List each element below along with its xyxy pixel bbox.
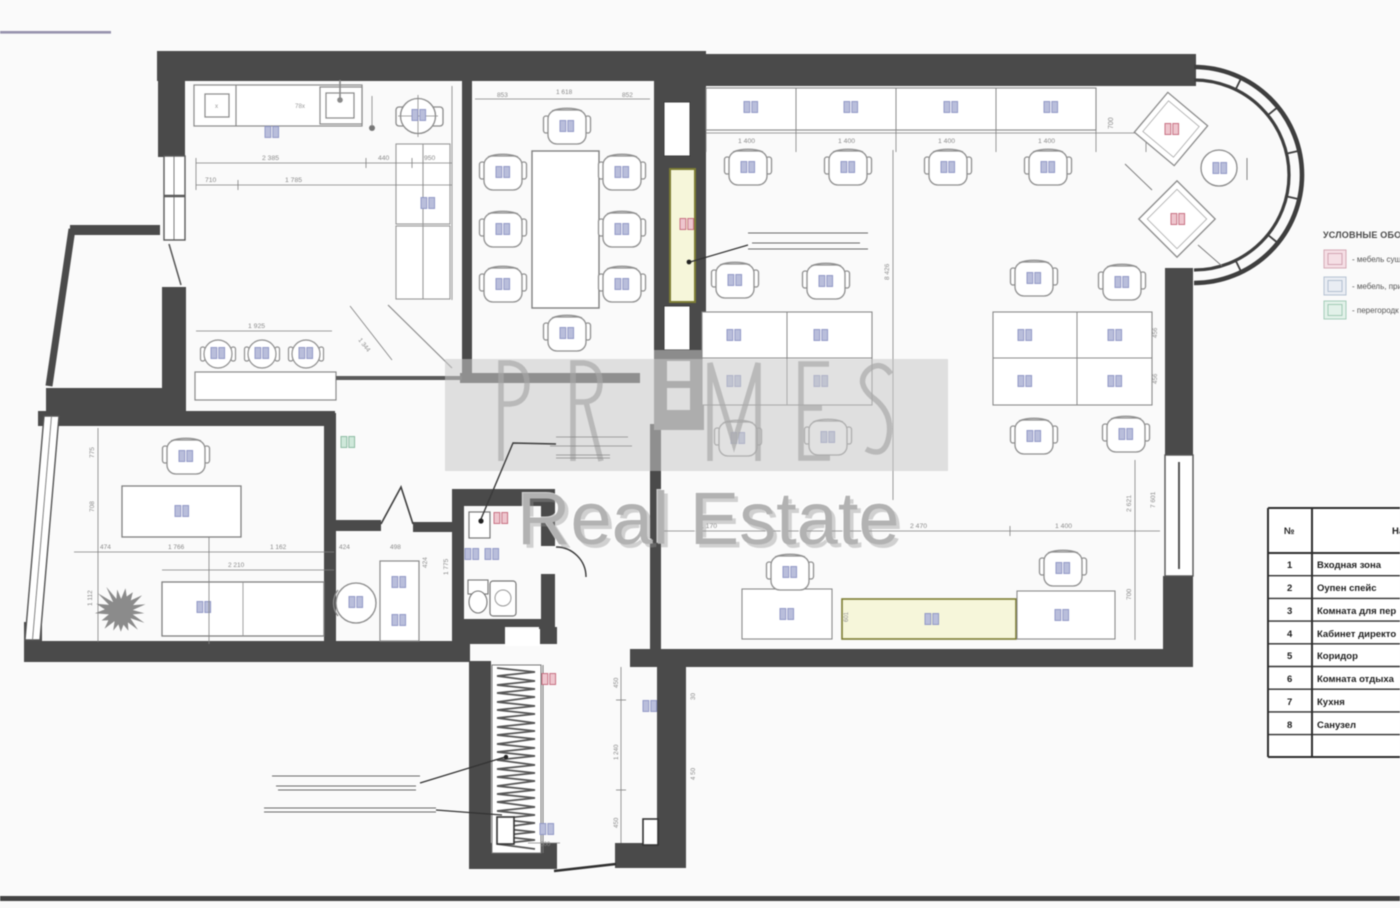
svg-text:Оупен спейс: Оупен спейс	[1317, 583, 1377, 594]
svg-text:Кухня: Кухня	[1317, 697, 1345, 708]
svg-text:710: 710	[205, 177, 217, 184]
svg-text:5: 5	[1287, 651, 1293, 662]
svg-text:1 775: 1 775	[443, 558, 450, 575]
svg-text:853: 853	[497, 92, 508, 99]
svg-text:Комната отдыха: Комната отдыха	[1317, 674, 1395, 685]
svg-text:7 601: 7 601	[1150, 491, 1157, 508]
svg-text:775: 775	[89, 447, 96, 458]
svg-text:440: 440	[378, 155, 390, 162]
svg-text:852: 852	[622, 92, 633, 99]
svg-text:4 50: 4 50	[690, 767, 697, 780]
svg-text:2 621: 2 621	[1126, 495, 1133, 512]
svg-text:6: 6	[1287, 674, 1292, 685]
svg-text:2 385: 2 385	[262, 155, 279, 162]
svg-text:Входная зона: Входная зона	[1317, 560, 1382, 571]
svg-text:1 112: 1 112	[87, 590, 94, 606]
svg-text:456: 456	[1152, 327, 1159, 338]
svg-text:708: 708	[89, 501, 96, 512]
svg-text:8: 8	[1287, 720, 1292, 731]
svg-text:424: 424	[339, 544, 350, 551]
svg-text:1 618: 1 618	[556, 89, 573, 96]
svg-text:450: 450	[613, 677, 620, 688]
svg-text:Кабинет директо: Кабинет директо	[1317, 629, 1396, 640]
svg-text:424: 424	[422, 557, 429, 568]
svg-text:500: 500	[540, 841, 551, 848]
svg-text:2 210: 2 210	[228, 562, 245, 569]
svg-text:1 400: 1 400	[938, 138, 955, 145]
svg-text:498: 498	[390, 544, 401, 551]
svg-text:1 400: 1 400	[1055, 523, 1072, 530]
svg-text:УСЛОВНЫЕ ОБОЗНАЧЕНИЯ: УСЛОВНЫЕ ОБОЗНАЧЕНИЯ	[1323, 230, 1400, 240]
svg-text:Наименование: Наименование	[1392, 526, 1400, 537]
svg-text:7: 7	[1287, 697, 1292, 708]
svg-text:3: 3	[1287, 606, 1292, 617]
svg-text:1 925: 1 925	[248, 323, 265, 330]
svg-text:- мебель суще: - мебель суще	[1352, 255, 1400, 264]
svg-text:1 400: 1 400	[838, 138, 855, 145]
svg-text:2: 2	[1287, 583, 1292, 594]
svg-text:1 400: 1 400	[738, 138, 755, 145]
svg-text:700: 700	[1108, 117, 1115, 129]
svg-text:8 426: 8 426	[884, 263, 891, 280]
svg-text:950: 950	[424, 155, 436, 162]
svg-text:- перегородк: - перегородк	[1352, 306, 1399, 315]
svg-text:4: 4	[1287, 629, 1293, 640]
svg-text:30: 30	[690, 693, 697, 700]
svg-text:Комната для пер: Комната для пер	[1317, 606, 1396, 617]
svg-text:№: №	[1284, 526, 1295, 537]
svg-text:Коридор: Коридор	[1317, 651, 1358, 662]
svg-text:2 470: 2 470	[910, 523, 927, 530]
svg-text:1 785: 1 785	[285, 177, 302, 184]
svg-text:601: 601	[844, 611, 850, 622]
svg-text:1: 1	[1287, 560, 1293, 571]
svg-text:1 400: 1 400	[1038, 138, 1055, 145]
svg-text:1 240: 1 240	[613, 744, 620, 760]
svg-text:456: 456	[1152, 373, 1159, 384]
svg-text:700: 700	[1126, 588, 1133, 600]
svg-text:450: 450	[613, 817, 620, 828]
svg-text:474: 474	[100, 544, 111, 551]
svg-text:1 162: 1 162	[270, 544, 287, 551]
svg-text:- мебель, при: - мебель, при	[1352, 282, 1400, 291]
svg-text:1 766: 1 766	[168, 544, 185, 551]
svg-text:Санузел: Санузел	[1317, 720, 1356, 731]
svg-text:Real Estate: Real Estate	[517, 477, 900, 560]
svg-text:78x: 78x	[295, 103, 306, 110]
